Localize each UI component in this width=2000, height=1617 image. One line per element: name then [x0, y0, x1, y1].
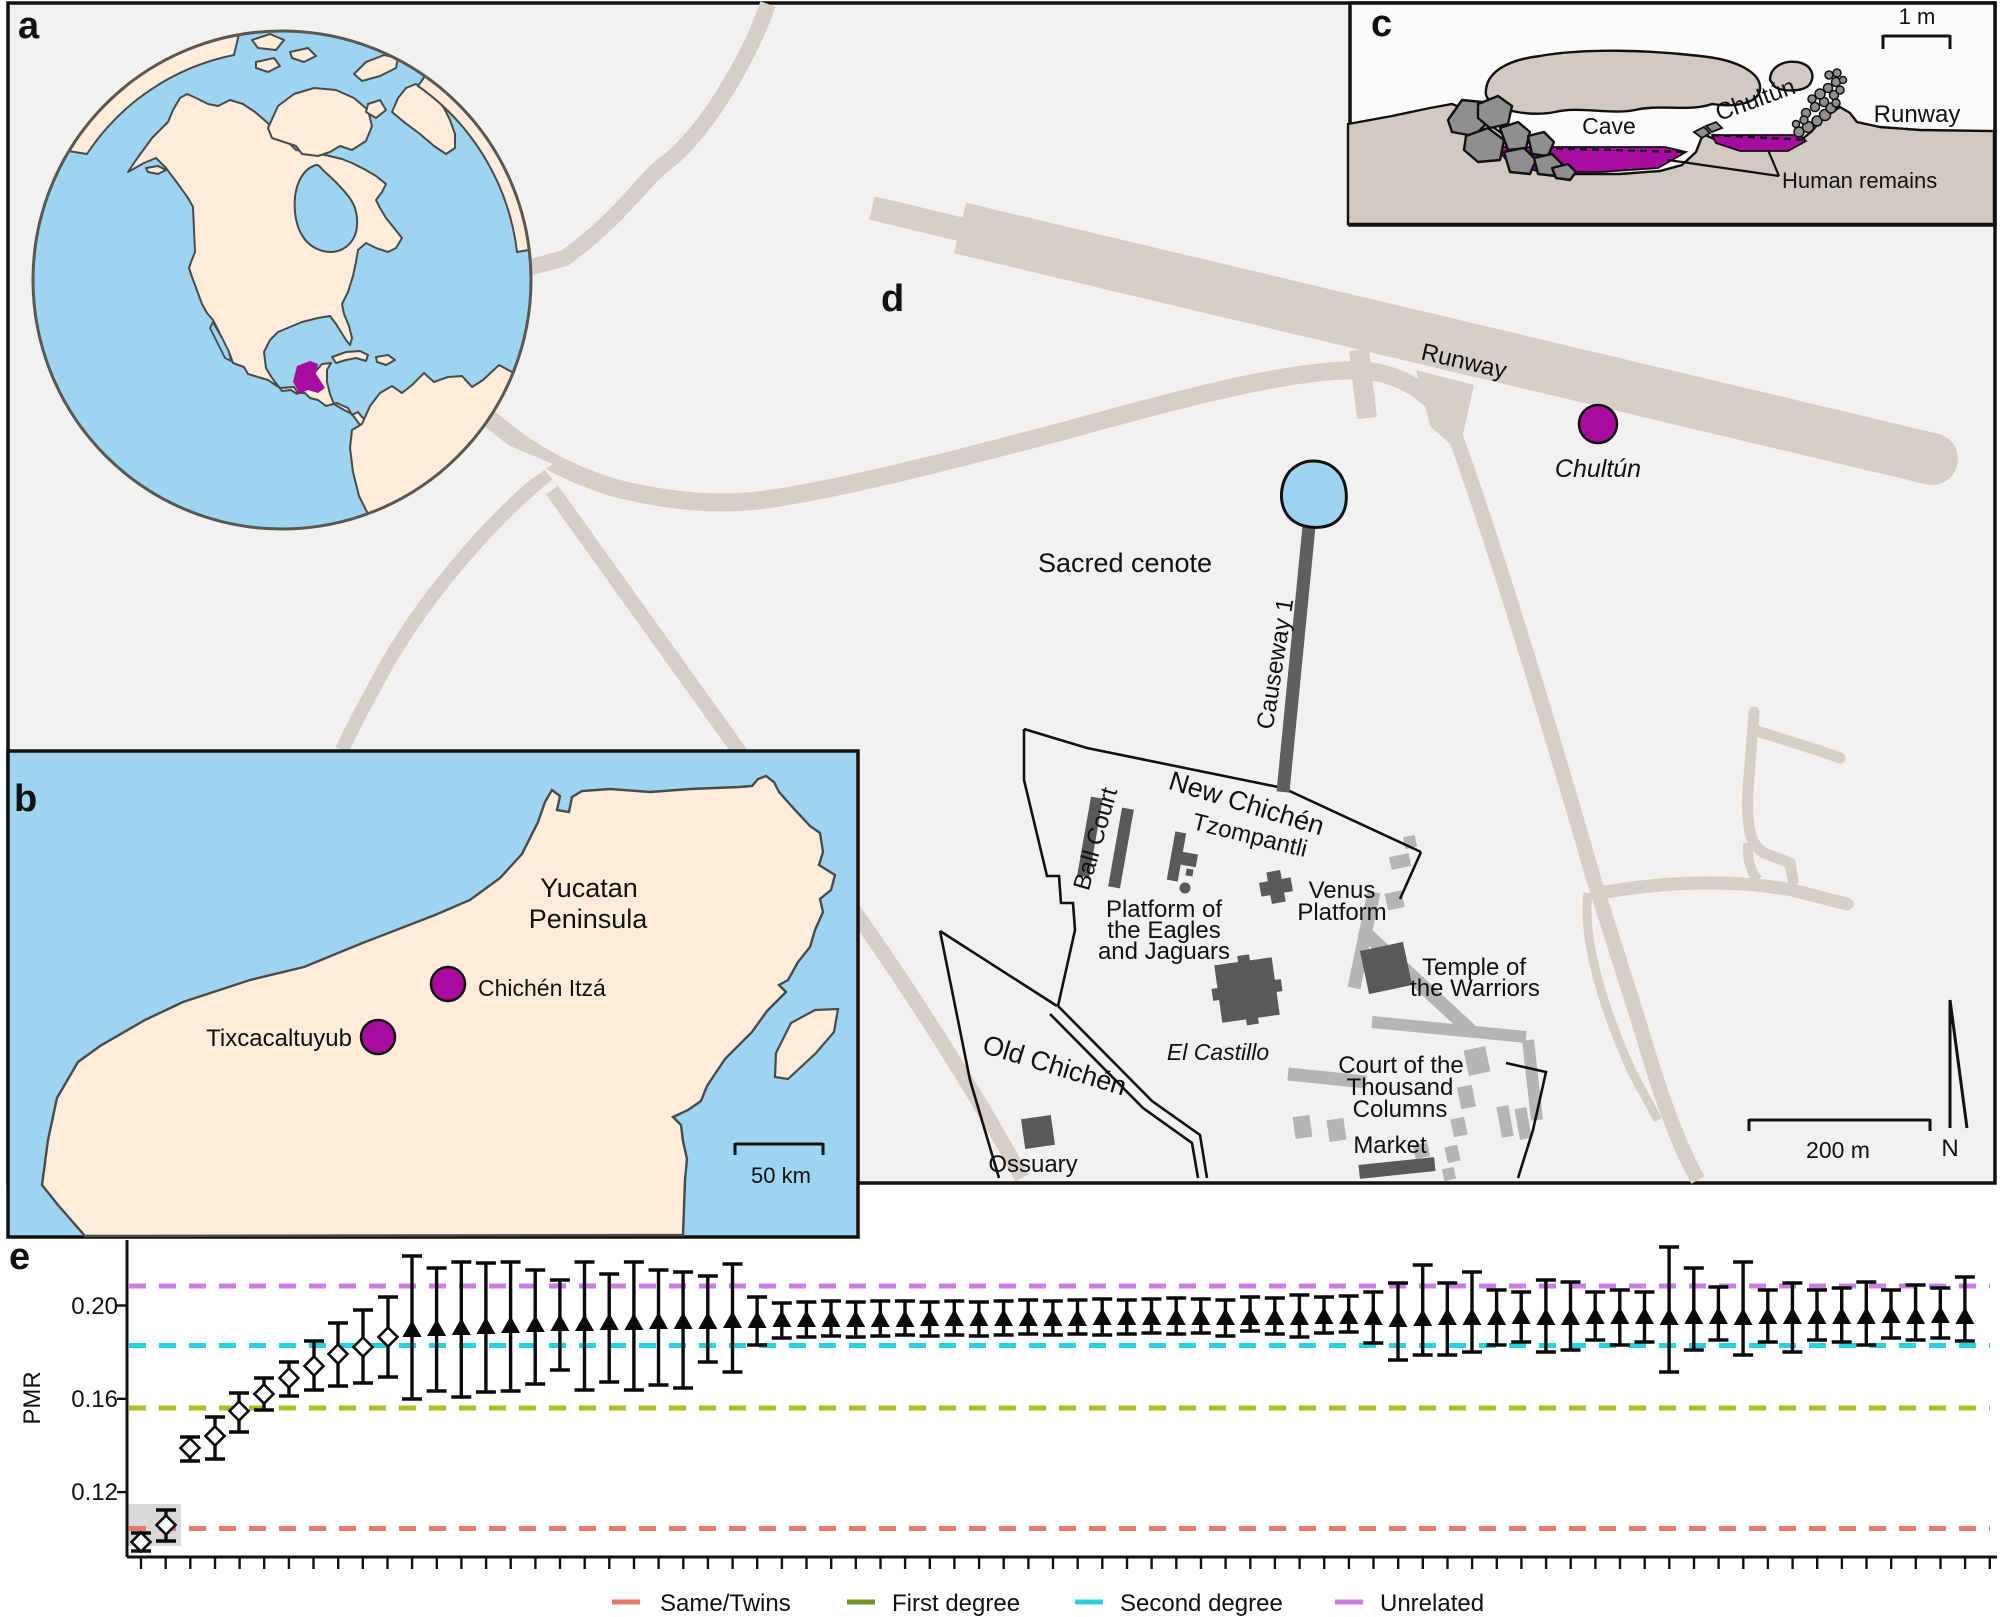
svg-text:Cave: Cave	[1582, 113, 1636, 139]
svg-text:Sacred cenote: Sacred cenote	[1038, 548, 1212, 578]
svg-text:Unrelated: Unrelated	[1380, 1590, 1484, 1617]
svg-text:Chichén Itzá: Chichén Itzá	[478, 975, 606, 1001]
svg-text:the Warriors: the Warriors	[1410, 975, 1540, 1002]
svg-text:1 m: 1 m	[1899, 4, 1936, 29]
svg-text:Chultún: Chultún	[1555, 455, 1641, 483]
svg-text:Market: Market	[1353, 1132, 1427, 1159]
svg-text:El Castillo: El Castillo	[1167, 1039, 1269, 1065]
svg-text:0.12: 0.12	[71, 1479, 118, 1506]
svg-text:e: e	[9, 1236, 30, 1278]
svg-text:d: d	[881, 278, 904, 320]
svg-text:Ossuary: Ossuary	[988, 1151, 1077, 1178]
svg-text:0.20: 0.20	[71, 1293, 118, 1320]
svg-text:Same/Twins: Same/Twins	[660, 1590, 791, 1617]
svg-text:Second degree: Second degree	[1120, 1590, 1283, 1617]
svg-text:b: b	[14, 778, 37, 820]
svg-text:and Jaguars: and Jaguars	[1098, 938, 1230, 965]
svg-text:c: c	[1371, 3, 1392, 45]
svg-text:0.16: 0.16	[71, 1386, 118, 1413]
svg-text:N: N	[1941, 1135, 1958, 1162]
svg-text:Yucatan: Yucatan	[540, 873, 638, 903]
svg-text:a: a	[18, 5, 40, 47]
svg-text:Human remains: Human remains	[1782, 168, 1937, 193]
svg-text:200 m: 200 m	[1806, 1137, 1870, 1163]
svg-text:Peninsula: Peninsula	[529, 904, 649, 934]
svg-text:Runway: Runway	[1874, 101, 1961, 128]
svg-text:Tixcacaltuyub: Tixcacaltuyub	[206, 1025, 352, 1052]
svg-text:Platform: Platform	[1297, 899, 1386, 926]
svg-text:First degree: First degree	[892, 1590, 1020, 1617]
svg-text:PMR: PMR	[19, 1371, 46, 1424]
svg-text:Columns: Columns	[1353, 1096, 1448, 1123]
svg-text:50 km: 50 km	[751, 1163, 811, 1188]
